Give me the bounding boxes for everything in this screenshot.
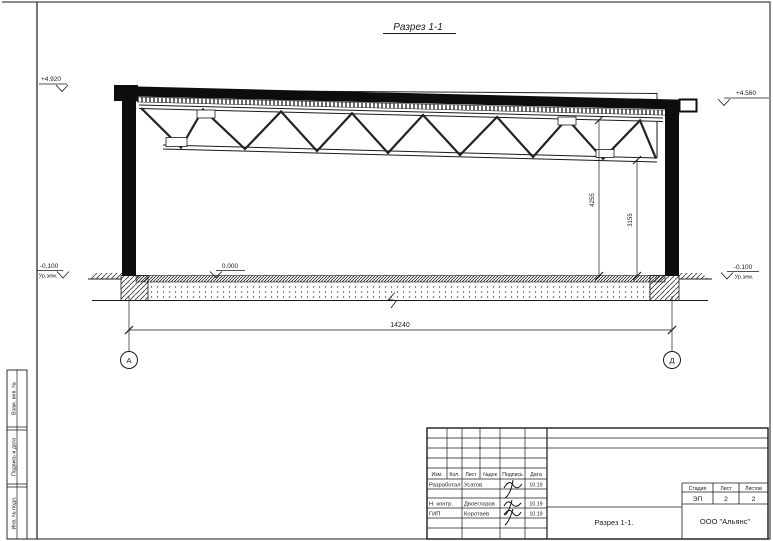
margin-stamps: Взам. инв. № Подпись и дата Инв. № подл. <box>7 370 27 539</box>
foundation-right <box>650 276 679 301</box>
column-right <box>665 101 679 276</box>
tb-company: ООО "Альянс" <box>700 517 750 526</box>
ground-label-right: Ур.зем. <box>735 275 754 281</box>
sheet-frame <box>2 2 770 539</box>
roof-right-end-cap <box>680 100 697 112</box>
tb-col-izm: Изм. <box>431 472 442 478</box>
title-block: Изм. Кол. Лист №док Подпись Дата Разрабо… <box>427 428 768 539</box>
tb-sheet-col: Лист <box>720 486 732 492</box>
ground-label-left: Ур.зем. <box>39 274 58 280</box>
span-dimension: 14240 <box>390 322 410 329</box>
column-left <box>122 88 136 276</box>
tb-role-nkontr: Н. контр. <box>429 502 453 508</box>
tb-col-data: Дата <box>530 472 542 478</box>
stamp-label-vzam: Взам. инв. № <box>12 382 18 415</box>
truss <box>139 105 663 162</box>
elevation-floor: 0.000 <box>222 263 239 270</box>
drawing-sheet: { "colors": { "ink": "#1a1a1a", "paper":… <box>0 0 773 541</box>
elevation-roof-right: +4.560 <box>736 90 756 97</box>
grid-axis-right: Д <box>669 356 674 365</box>
grid-axis-left: А <box>126 356 131 365</box>
truss-gusset <box>197 110 215 118</box>
elevation-arrow-icon <box>721 273 733 280</box>
tb-sheets-col: Листов <box>745 486 762 492</box>
tb-sheets-value: 2 <box>752 496 756 503</box>
tb-role-gip: ГИП <box>429 512 440 518</box>
truss-gusset <box>558 117 576 125</box>
tb-col-list: Лист <box>465 472 477 478</box>
height-dimension-left: 4255 <box>590 193 596 207</box>
height-dimension-right: 3155 <box>628 213 634 227</box>
drawing-title: Разрез 1-1 <box>383 22 456 34</box>
floor-and-foundations <box>88 273 712 308</box>
stamp-label-inv: Инв. № подл. <box>12 497 18 530</box>
tb-stage-value: ЭП <box>693 496 703 503</box>
tb-name-korotaev: Коротаев <box>464 512 489 518</box>
ground-hatch-right <box>679 273 708 279</box>
elevation-arrow-icon <box>56 85 68 92</box>
ground-hatch-left <box>90 273 122 279</box>
elevation-arrow-icon <box>718 99 730 106</box>
stamp-label-podpis: Подпись и дата <box>12 438 18 476</box>
tb-col-podpis: Подпись <box>502 472 523 478</box>
drawing-title-text: Разрез 1-1 <box>393 22 443 33</box>
tb-date: 10.19 <box>529 502 542 508</box>
tb-doc-title: Разрез 1-1. <box>595 518 634 527</box>
tb-name-usatov: Усатов <box>464 483 482 489</box>
tb-role-razrabotal: Разработал <box>429 483 461 489</box>
truss-bearing-seat <box>166 138 187 147</box>
gravel-bed <box>148 282 650 300</box>
tb-date: 10.19 <box>529 512 542 518</box>
tb-col-ndok: №док <box>483 472 497 478</box>
foundation-left <box>121 276 148 301</box>
tb-col-kol: Кол. <box>449 472 459 478</box>
elevation-roof-left: +4.920 <box>41 76 61 83</box>
elevation-ground-right: -0.100 <box>734 264 753 271</box>
elevation-arrow-icon <box>57 272 69 279</box>
tb-stage-col: Стадия <box>689 486 707 492</box>
tb-name-dvoeglazov: Двоеглазов <box>464 502 495 508</box>
elevation-ground-left: -0.100 <box>40 263 59 270</box>
tb-sheet-value: 2 <box>724 496 728 503</box>
section-drawing: Разрез 1-1 <box>0 0 773 541</box>
tb-date: 10.19 <box>529 483 542 489</box>
